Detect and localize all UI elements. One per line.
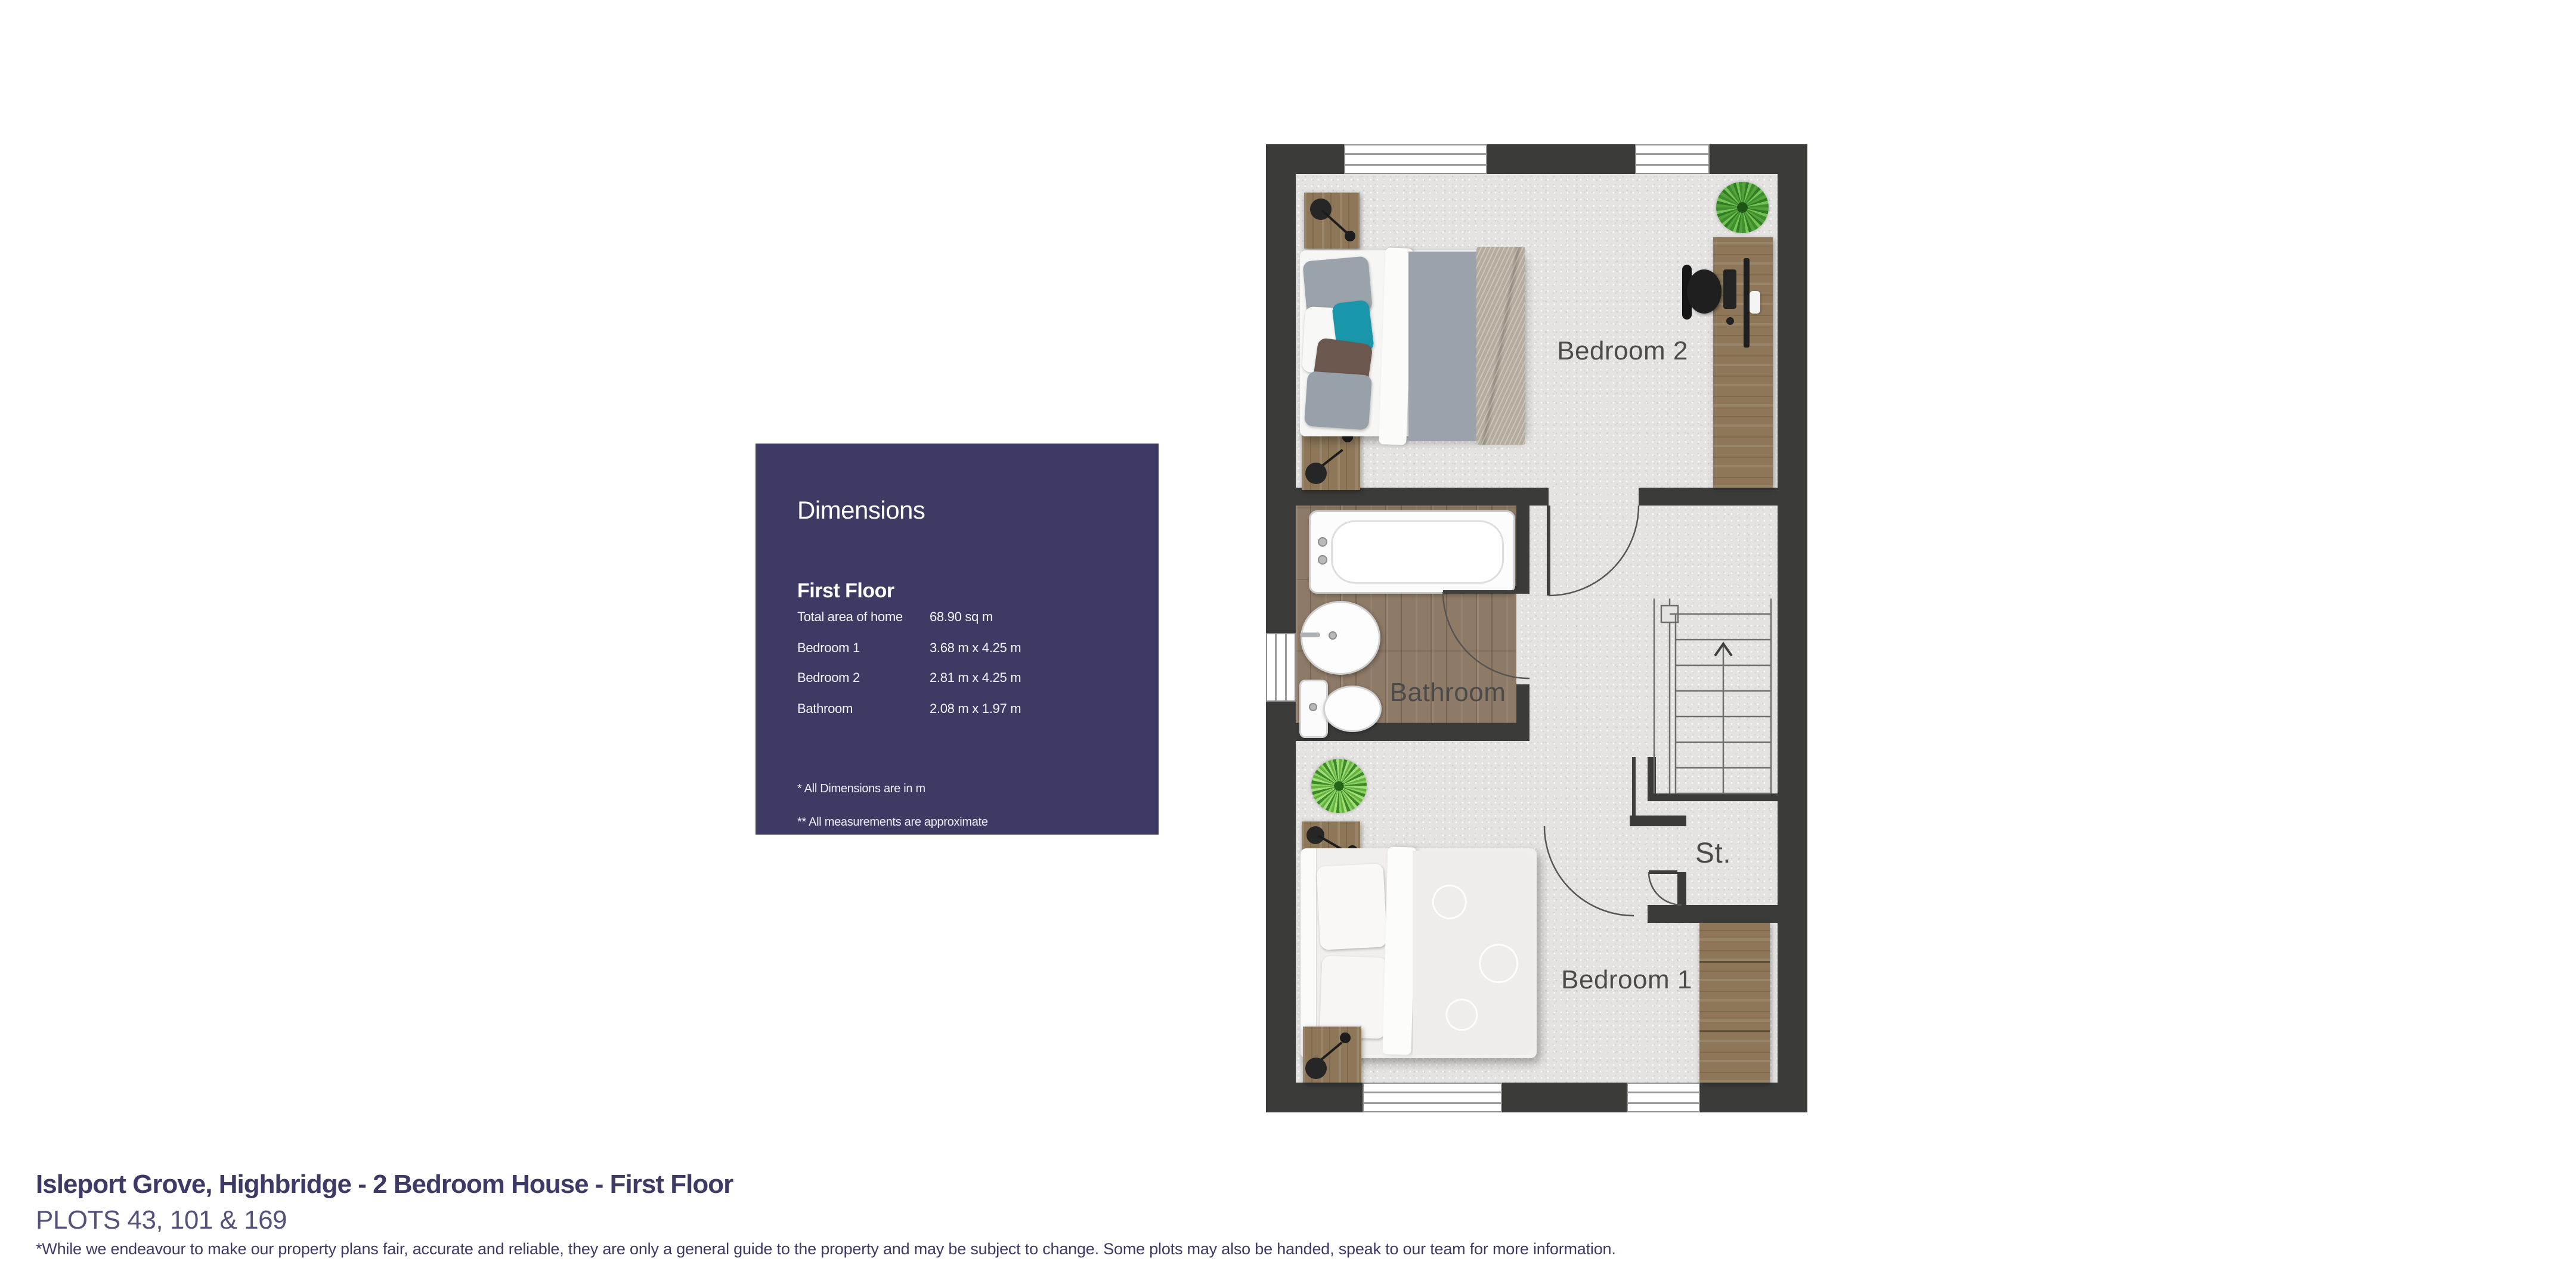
room-label-storage: St. bbox=[1668, 837, 1758, 870]
page-canvas: Dimensions First Floor Total area of hom… bbox=[0, 0, 2576, 1265]
nightstand bbox=[1303, 1027, 1361, 1083]
window-bedroom1-left bbox=[1363, 1083, 1502, 1112]
toilet-flush-button bbox=[1309, 703, 1317, 711]
dimension-label: Bathroom bbox=[797, 701, 853, 717]
monitor-mount bbox=[1750, 291, 1760, 314]
wall-storage-left bbox=[1677, 872, 1686, 905]
wall-bedroom2-divider-right bbox=[1639, 488, 1778, 506]
wall-below-stairs bbox=[1648, 793, 1778, 801]
sink bbox=[1301, 601, 1380, 675]
floor-plan: Bedroom 2 Bathroom St. Bedroom 1 bbox=[1266, 144, 1807, 1112]
window-glazing-bar bbox=[1345, 164, 1486, 166]
room-label-bedroom1: Bedroom 1 bbox=[1537, 965, 1716, 995]
lamp-head bbox=[1345, 231, 1355, 241]
door-arc-bedroom1 bbox=[1544, 826, 1634, 916]
bed-throw-textured bbox=[1476, 247, 1525, 445]
door-arc-bedroom2 bbox=[1549, 506, 1639, 596]
plant-bedroom1 bbox=[1311, 759, 1367, 813]
dimension-label: Bedroom 1 bbox=[797, 640, 860, 656]
wardrobe bbox=[1699, 923, 1770, 1083]
dimensions-title: Dimensions bbox=[797, 496, 925, 525]
dimension-value: 2.81 m x 4.25 m bbox=[930, 670, 1021, 686]
window-bedroom1-right bbox=[1627, 1083, 1700, 1112]
lamp-icon bbox=[1305, 1058, 1327, 1079]
wardrobe-shelf-line bbox=[1699, 961, 1770, 963]
bed-double-bedroom2 bbox=[1300, 250, 1522, 436]
plant-bedroom2 bbox=[1716, 182, 1769, 233]
page-title: Isleport Grove, Highbridge - 2 Bedroom H… bbox=[36, 1170, 733, 1199]
lamp-icon bbox=[1305, 463, 1327, 484]
stairs-up-arrow-icon bbox=[1715, 644, 1732, 656]
sink-drain bbox=[1329, 631, 1337, 640]
dimension-row-bedroom-1: Bedroom 1 3.68 m x 4.25 m bbox=[797, 640, 1131, 658]
dimensions-footnote-1: * All Dimensions are in m bbox=[797, 782, 925, 796]
monitor-icon bbox=[1744, 258, 1750, 348]
bathtub bbox=[1309, 510, 1515, 594]
staircase bbox=[1654, 599, 1771, 793]
window-glazing-bar bbox=[1275, 634, 1277, 700]
bathtub-tap bbox=[1318, 555, 1327, 565]
wall-bathroom-bottom bbox=[1296, 723, 1529, 741]
keyboard-icon bbox=[1723, 269, 1736, 309]
disclaimer-text: *While we endeavour to make our property… bbox=[36, 1240, 1616, 1258]
pillow-gray bbox=[1304, 371, 1372, 430]
desk bbox=[1713, 237, 1773, 488]
bed-duvet-floral bbox=[1413, 851, 1535, 1056]
desk-chair-icon bbox=[1687, 269, 1722, 314]
nightstand bbox=[1304, 193, 1360, 249]
window-glazing-bar bbox=[1364, 1102, 1501, 1104]
dimension-row-bathroom: Bathroom 2.08 m x 1.97 m bbox=[797, 701, 1131, 719]
door-arc-storage bbox=[1649, 872, 1682, 905]
window-bedroom2-left bbox=[1344, 144, 1487, 174]
dimensions-panel: Dimensions First Floor Total area of hom… bbox=[756, 444, 1159, 835]
plots-subtitle: PLOTS 43, 101 & 169 bbox=[36, 1205, 287, 1235]
wall-landing-bedroom1-stub bbox=[1630, 816, 1686, 826]
lamp-head bbox=[1340, 1033, 1351, 1043]
wall-stairs-left-post bbox=[1648, 757, 1656, 793]
window-glazing-bar bbox=[1364, 1092, 1501, 1093]
bathtub-tap bbox=[1318, 537, 1327, 547]
dimension-label: Total area of home bbox=[797, 609, 903, 625]
dimension-label: Bedroom 2 bbox=[797, 670, 860, 686]
room-label-bathroom: Bathroom bbox=[1358, 678, 1537, 708]
dimension-value: 3.68 m x 4.25 m bbox=[930, 640, 1021, 656]
bed-duvet-gray bbox=[1408, 252, 1480, 441]
window-bathroom bbox=[1266, 633, 1296, 702]
dimensions-footnote-2: ** All measurements are approximate bbox=[797, 816, 988, 829]
dimension-value: 68.90 sq m bbox=[930, 609, 993, 625]
room-label-bedroom2: Bedroom 2 bbox=[1533, 336, 1712, 366]
window-glazing-bar bbox=[1628, 1092, 1699, 1093]
window-glazing-bar bbox=[1628, 1102, 1699, 1104]
window-glazing-bar bbox=[1285, 634, 1287, 700]
dimension-value: 2.08 m x 1.97 m bbox=[930, 701, 1021, 717]
dimension-row-total-area: Total area of home 68.90 sq m bbox=[797, 609, 1131, 627]
window-glazing-bar bbox=[1636, 164, 1708, 166]
lamp-icon bbox=[1306, 826, 1324, 844]
wall-bedroom2-divider-left bbox=[1296, 488, 1549, 506]
bathtub-basin bbox=[1331, 520, 1504, 584]
wall-storage-bottom bbox=[1648, 905, 1778, 923]
sink-tap bbox=[1300, 632, 1320, 637]
mouse-icon bbox=[1726, 317, 1734, 325]
bed-sheet-fold bbox=[1382, 847, 1416, 1055]
window-glazing-bar bbox=[1636, 153, 1708, 155]
pillow-quilted bbox=[1316, 863, 1387, 950]
dimension-row-bedroom-2: Bedroom 2 2.81 m x 4.25 m bbox=[797, 670, 1131, 688]
wardrobe-shelf-line bbox=[1699, 1030, 1770, 1032]
window-bedroom2-right bbox=[1635, 144, 1710, 174]
wall-bathroom-right-upper bbox=[1516, 506, 1529, 592]
dimensions-section-heading: First Floor bbox=[797, 579, 894, 603]
window-glazing-bar bbox=[1345, 153, 1486, 155]
